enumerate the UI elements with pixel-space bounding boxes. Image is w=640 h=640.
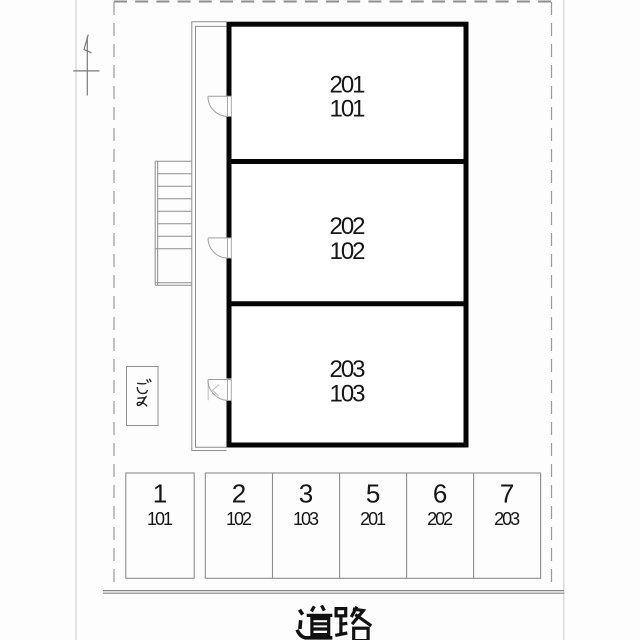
svg-text:203103: 203103 xyxy=(330,356,366,407)
svg-text:201: 201 xyxy=(360,509,386,529)
svg-text:1: 1 xyxy=(153,479,167,509)
svg-text:201101: 201101 xyxy=(330,72,366,123)
svg-text:202102: 202102 xyxy=(330,213,366,265)
svg-text:102: 102 xyxy=(226,509,252,529)
svg-text:202: 202 xyxy=(427,509,453,529)
svg-text:5: 5 xyxy=(366,479,380,509)
svg-text:101: 101 xyxy=(147,509,173,529)
svg-text:7: 7 xyxy=(500,479,514,509)
svg-text:203: 203 xyxy=(494,509,520,529)
svg-text:6: 6 xyxy=(433,479,447,509)
svg-text:103: 103 xyxy=(293,509,319,529)
svg-text:3: 3 xyxy=(299,479,313,509)
svg-text:2: 2 xyxy=(232,479,246,509)
